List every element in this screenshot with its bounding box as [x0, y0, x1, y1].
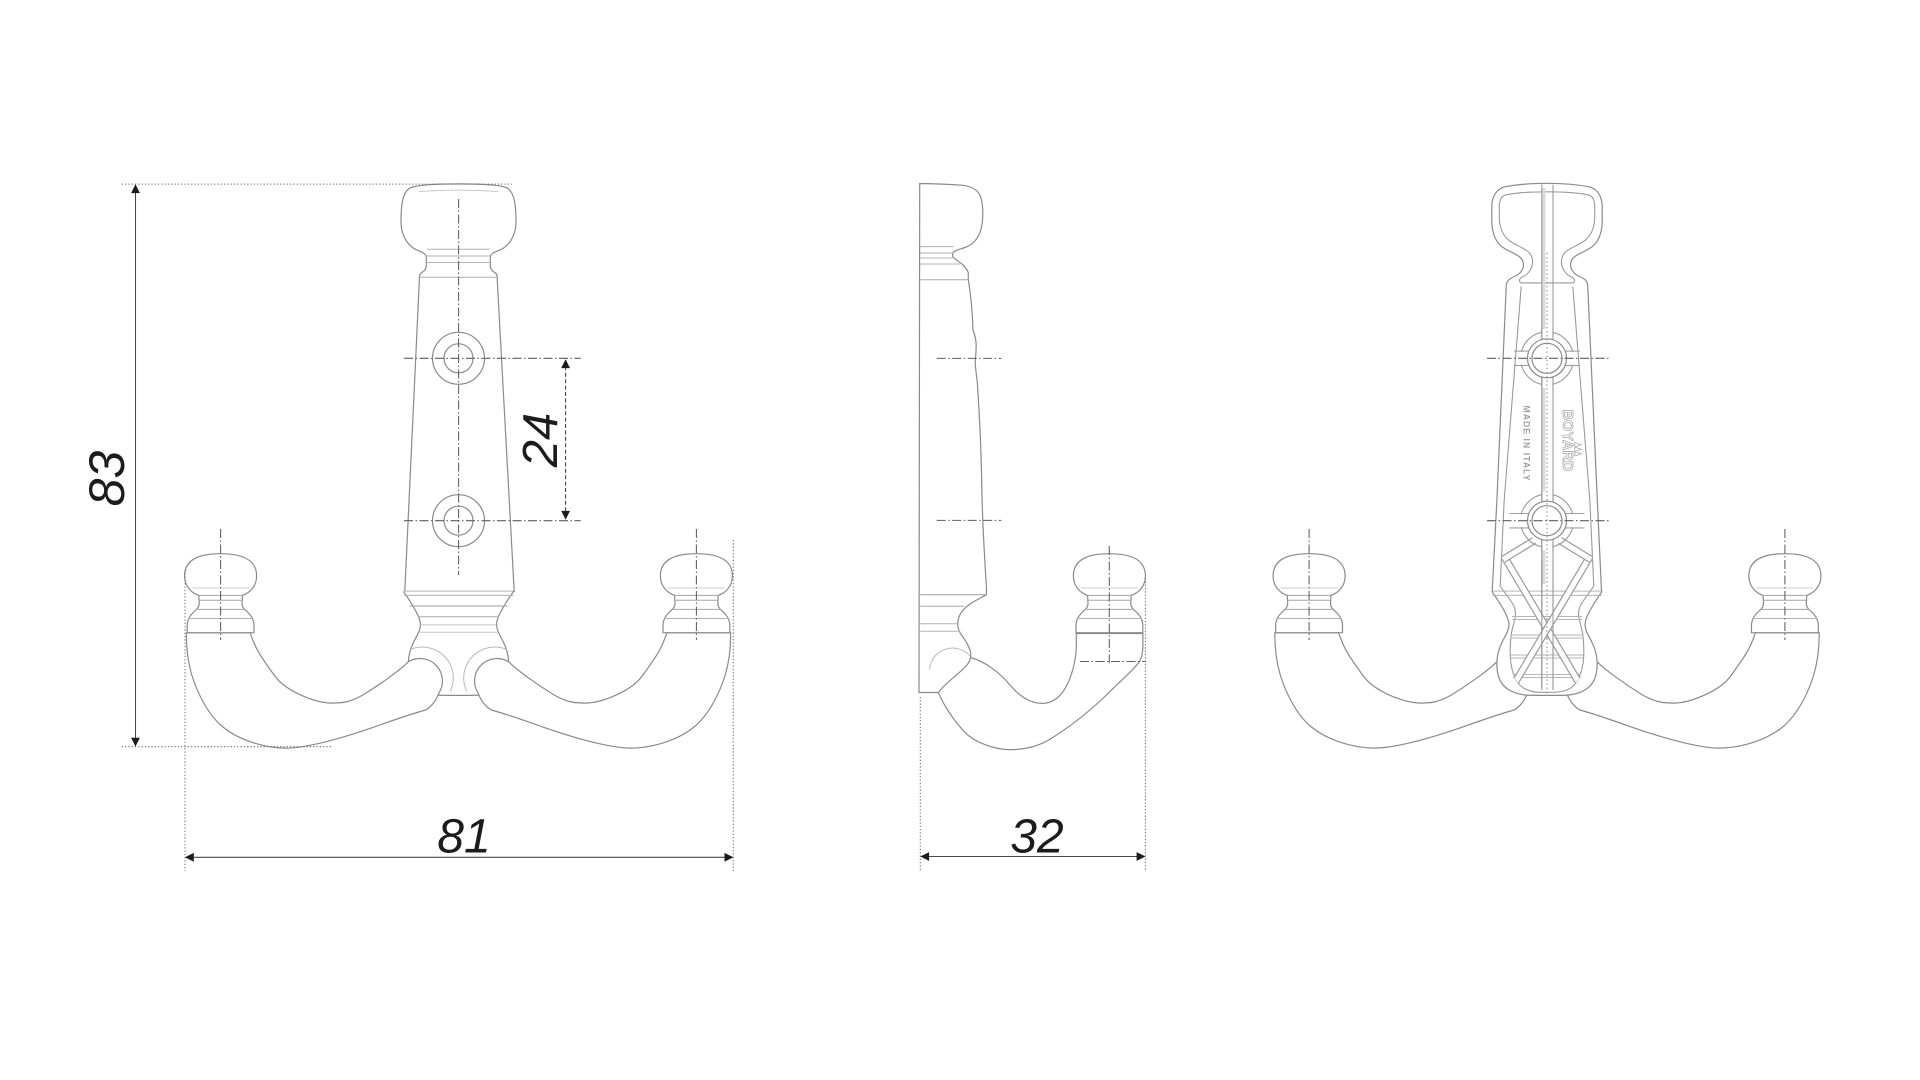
svg-text:24: 24 [514, 413, 568, 469]
svg-text:83: 83 [79, 451, 135, 507]
svg-text:MADE IN ITALY: MADE IN ITALY [1521, 406, 1532, 482]
svg-text:81: 81 [437, 811, 490, 864]
svg-text:BOYARD: BOYARD [1559, 410, 1576, 472]
svg-text:32: 32 [1010, 811, 1063, 864]
